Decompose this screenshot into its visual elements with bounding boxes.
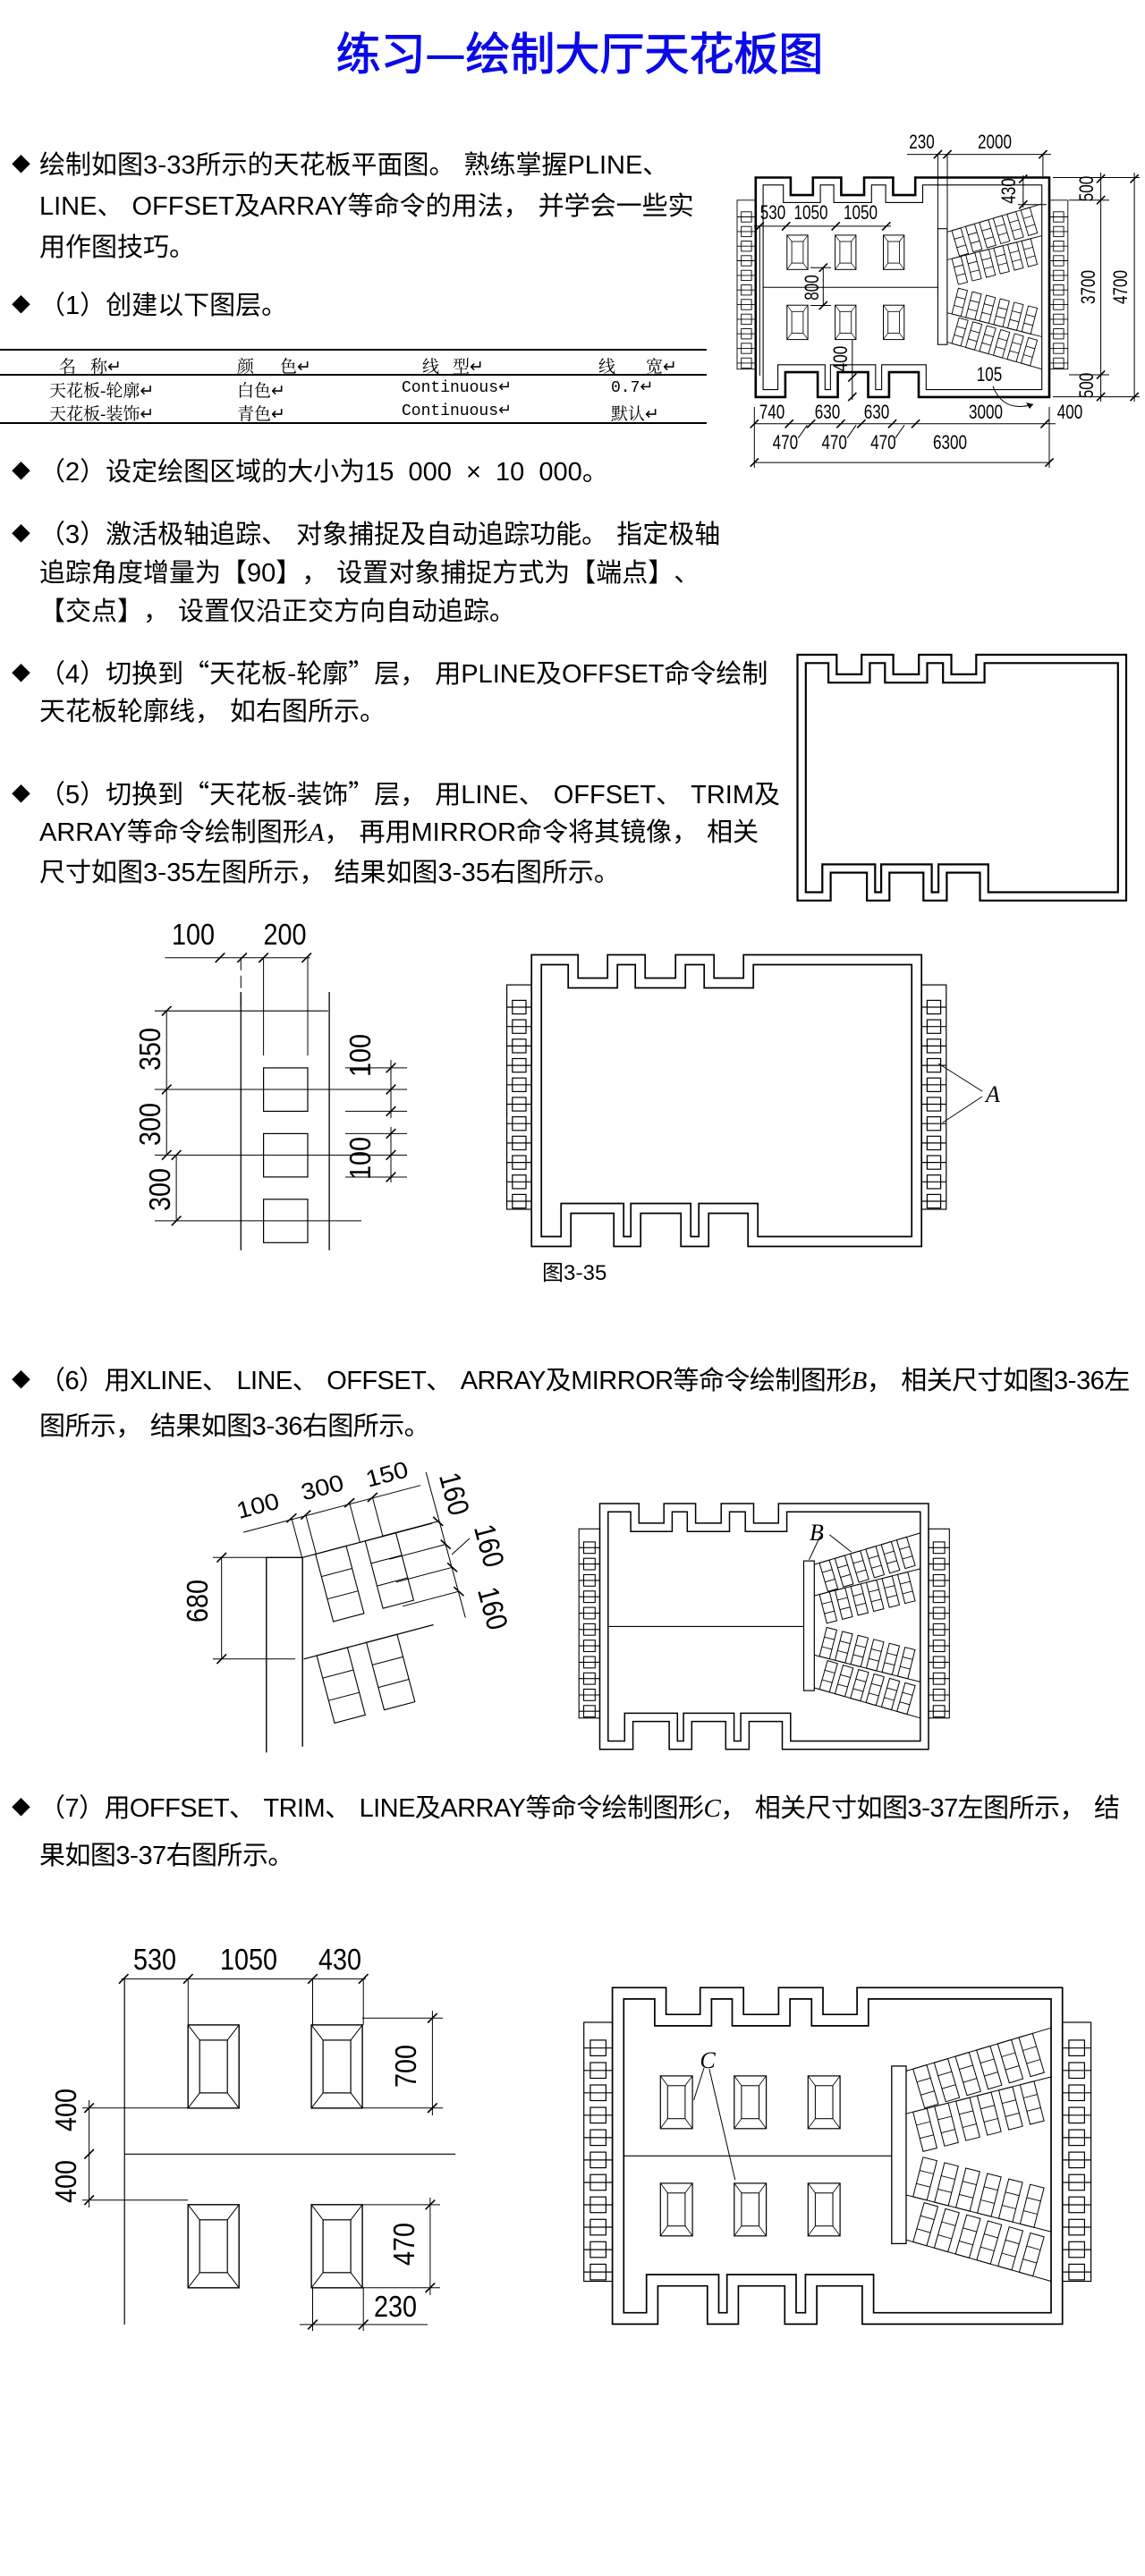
svg-text:C: C [700,2047,716,2073]
svg-text:230: 230 [909,131,935,153]
svg-text:700: 700 [389,2045,422,2088]
svg-text:3000: 3000 [969,401,1003,423]
svg-text:100: 100 [343,1034,377,1077]
svg-text:400: 400 [829,346,852,372]
svg-text:6300: 6300 [933,431,967,453]
svg-text:530: 530 [133,1943,176,1976]
svg-text:160: 160 [433,1469,476,1519]
svg-text:300: 300 [133,1103,166,1146]
svg-text:470: 470 [821,431,847,453]
svg-text:100: 100 [343,1137,377,1180]
svg-text:150: 150 [362,1455,411,1492]
svg-text:300: 300 [143,1168,176,1211]
svg-text:530: 530 [760,201,786,224]
svg-text:400: 400 [1057,401,1083,423]
svg-text:160: 160 [471,1583,514,1633]
svg-text:630: 630 [864,401,890,423]
svg-text:1050: 1050 [794,201,828,224]
svg-text:1050: 1050 [220,1943,277,1976]
svg-text:470: 470 [773,431,799,453]
svg-text:400: 400 [49,2089,82,2131]
svg-text:430: 430 [997,178,1020,204]
svg-text:230: 230 [374,2290,417,2323]
svg-text:100: 100 [172,918,215,951]
svg-text:400: 400 [49,2160,82,2203]
svg-text:470: 470 [387,2223,420,2266]
svg-text:160: 160 [468,1521,511,1571]
svg-text:800: 800 [801,275,823,301]
svg-text:350: 350 [133,1028,166,1071]
svg-text:680: 680 [181,1580,214,1623]
svg-text:300: 300 [298,1469,346,1505]
svg-text:A: A [984,1081,1000,1107]
svg-text:500: 500 [1075,176,1098,202]
svg-text:630: 630 [815,401,841,423]
svg-text:430: 430 [318,1943,361,1976]
svg-text:105: 105 [977,363,1003,386]
svg-text:100: 100 [233,1487,282,1524]
svg-text:2000: 2000 [978,131,1012,153]
svg-text:3700: 3700 [1077,270,1099,304]
svg-text:500: 500 [1075,373,1098,399]
svg-text:740: 740 [759,401,785,423]
svg-text:4700: 4700 [1109,270,1132,304]
svg-text:B: B [810,1520,824,1546]
svg-text:1050: 1050 [844,201,878,224]
svg-text:200: 200 [264,918,307,951]
svg-text:470: 470 [870,431,896,453]
